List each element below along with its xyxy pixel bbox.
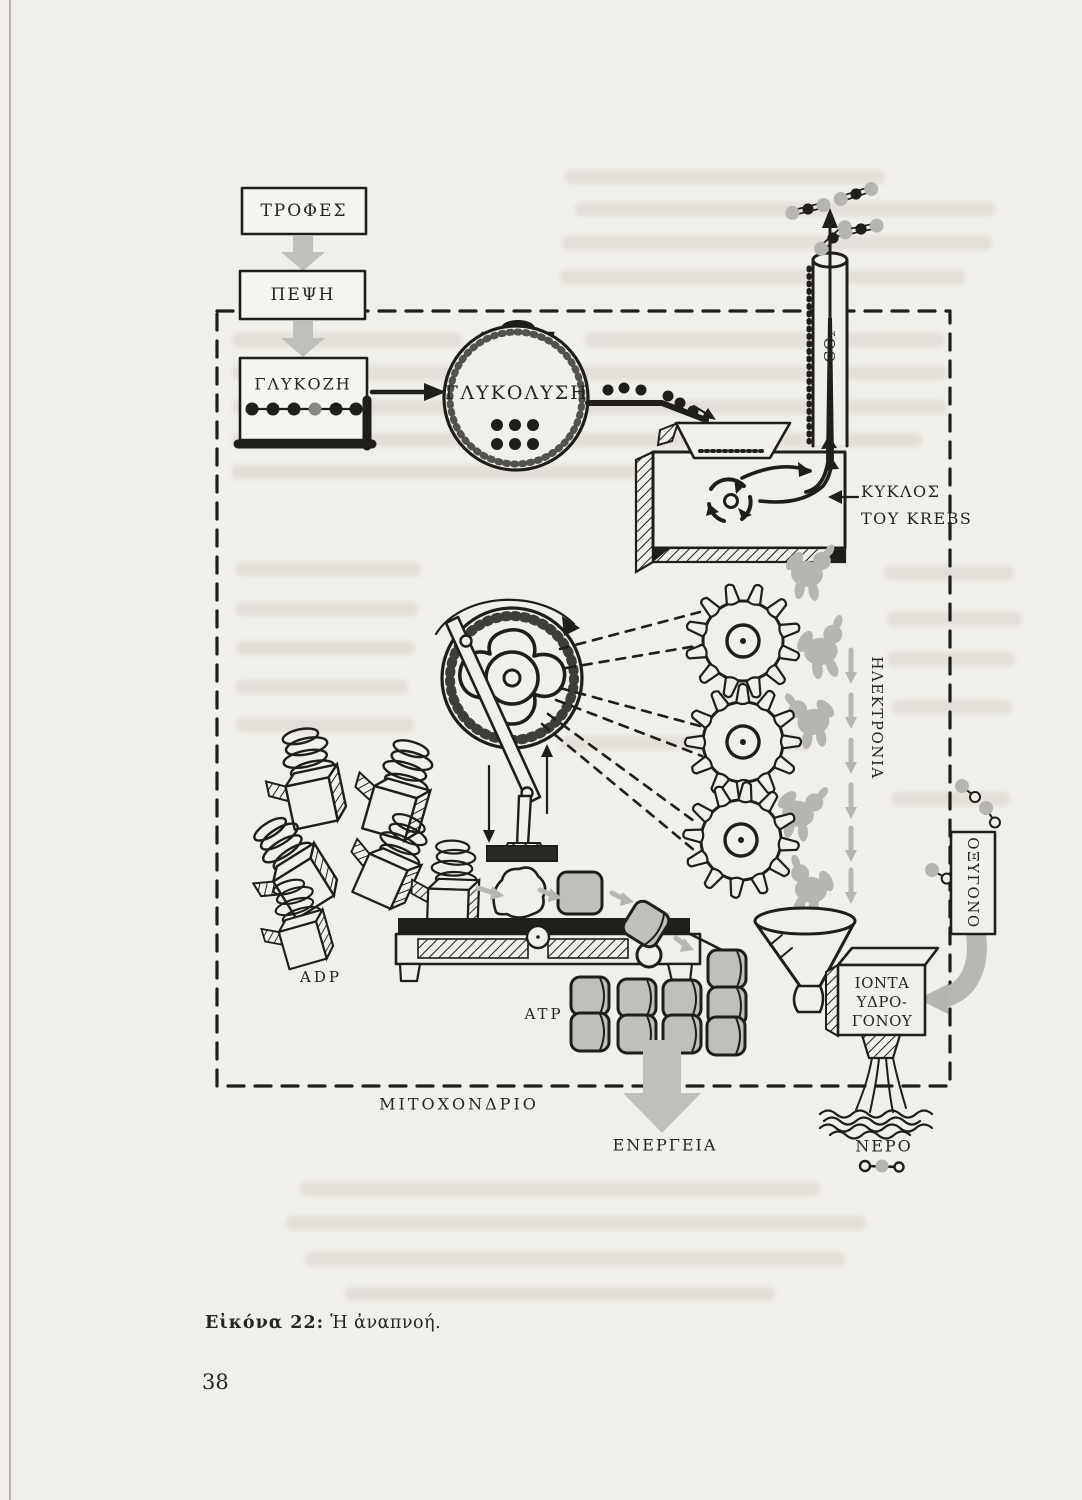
pressed-atp-cube xyxy=(558,872,602,914)
figure-caption-number: Εἰκόνα 22: xyxy=(205,1313,324,1333)
crumpled-adp xyxy=(494,868,546,918)
figure-caption-title: Ἡ ἀναπνοή. xyxy=(330,1313,441,1333)
glycolysis-label: ΓΛΥΚΟΛΥΣΗ xyxy=(445,382,589,404)
mitochondrion-label: ΜΙΤΟΧΟΝΔΡΙΟ xyxy=(379,1095,539,1114)
scanned-book-page: ΤΡΟΦΕΣ ΠΕΨΗ ΓΛΥΚΟΖΗ ΓΛΥΚΟΛΥΣΗ CO₂ ΚΥΚΛΟΣ… xyxy=(0,0,1082,1500)
adp-label: ADP xyxy=(300,968,342,986)
energy-label: ΕΝΕΡΓΕΙΑ xyxy=(613,1136,718,1155)
digestion-label: ΠΕΨΗ xyxy=(271,285,336,305)
glucose-box xyxy=(240,358,367,440)
co2-label: CO₂ xyxy=(821,330,839,363)
oxygen-entry xyxy=(918,779,1005,1014)
hydrogen-ions-label: ΙΟΝΤΑ ΥΔΡΟ- ΓΟΝΟΥ xyxy=(836,974,928,1031)
atp-label: ATP xyxy=(524,1005,563,1023)
krebs-label-line1: ΚΥΚΛΟΣ xyxy=(861,478,972,505)
drive-lines xyxy=(542,612,702,855)
atp-press-conveyor xyxy=(396,839,726,981)
paddle-wheel xyxy=(685,583,801,699)
down-arrow xyxy=(281,321,325,357)
krebs-hopper xyxy=(676,423,790,458)
water-formation xyxy=(755,908,938,1173)
oxygen-label: ΟΞΥΓΟΝΟ xyxy=(964,837,982,928)
funnel-mouth xyxy=(755,908,855,934)
water-label: ΝΕΡΟ xyxy=(855,1137,913,1156)
figure-caption: Εἰκόνα 22: Ἡ ἀναπνοή. xyxy=(205,1313,441,1333)
krebs-label: ΚΥΚΛΟΣ ΤΟΥ KREBS xyxy=(861,478,972,532)
hydrogen-ions-line2: ΥΔΡΟ- xyxy=(836,993,928,1012)
hydrogen-ions-line1: ΙΟΝΤΑ xyxy=(836,974,928,993)
atp-stack xyxy=(571,950,746,1055)
food-chain xyxy=(238,188,446,446)
respiration-diagram-artwork xyxy=(0,0,1082,1500)
down-arrow xyxy=(281,236,325,271)
electron-flow-arrows xyxy=(845,650,857,904)
rotary-engine xyxy=(436,600,582,861)
water-molecule xyxy=(860,1160,904,1173)
page-number: 38 xyxy=(202,1370,229,1394)
hydrogen-ions-line3: ΓΟΝΟΥ xyxy=(836,1012,928,1031)
krebs-label-line2: ΤΟΥ KREBS xyxy=(861,505,972,532)
press-plate xyxy=(487,846,557,861)
electrons-label: ΗΛΕΚΤΡΟΝΙΑ xyxy=(868,656,886,779)
foods-label: ΤΡΟΦΕΣ xyxy=(260,201,347,221)
pyruvate-track xyxy=(588,383,716,421)
water-waves xyxy=(820,1111,932,1118)
glucose-label: ΓΛΥΚΟΖΗ xyxy=(254,375,351,394)
